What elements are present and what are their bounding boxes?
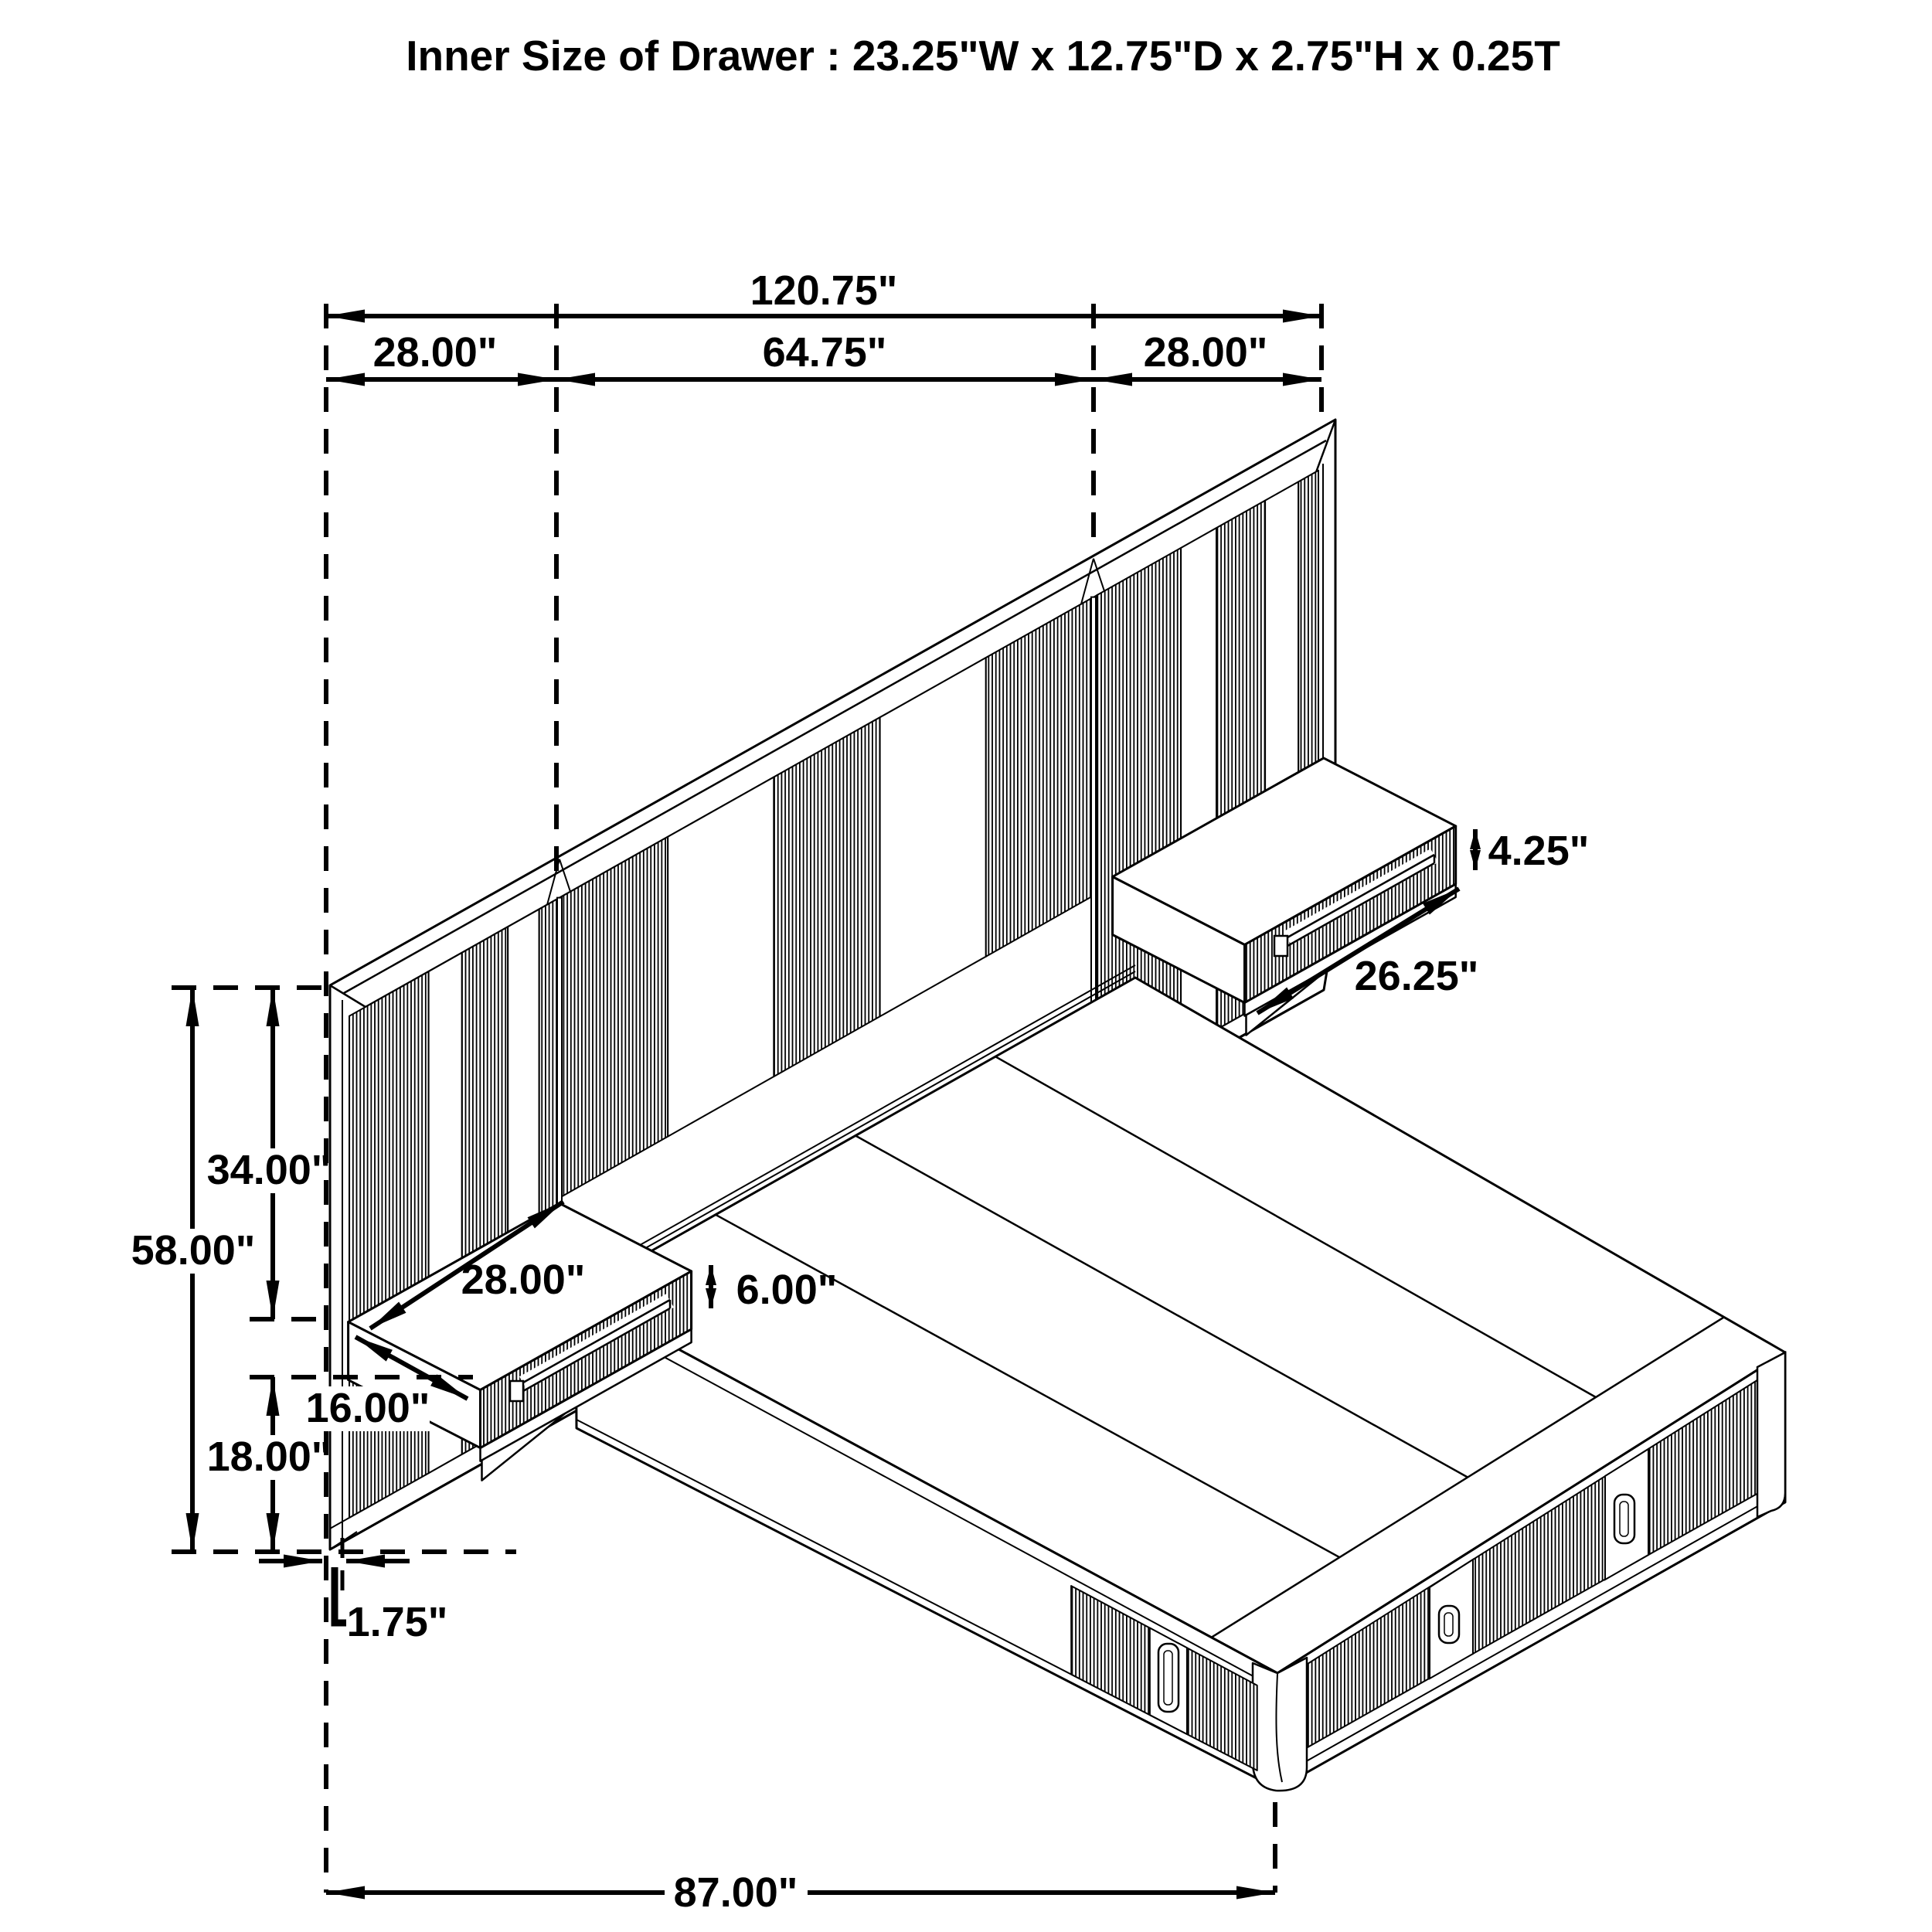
svg-text:Inner Size of Drawer : 23.25"W: Inner Size of Drawer : 23.25"W x 12.75"D… [406,32,1560,80]
svg-text:16.00": 16.00" [306,1385,430,1431]
svg-text:28.00": 28.00" [1144,329,1268,376]
svg-text:18.00": 18.00" [207,1434,332,1480]
svg-text:64.75": 64.75" [763,329,887,376]
svg-text:28.00": 28.00" [373,329,498,376]
svg-text:58.00": 58.00" [131,1227,256,1274]
svg-text:4.25": 4.25" [1488,828,1590,874]
svg-text:1.75": 1.75" [347,1599,448,1645]
svg-text:34.00": 34.00" [207,1147,332,1193]
svg-text:6.00": 6.00" [736,1267,838,1313]
svg-text:87.00": 87.00" [674,1869,798,1916]
svg-text:120.75": 120.75" [750,267,898,314]
svg-text:26.25": 26.25" [1355,953,1479,999]
svg-text:28.00": 28.00" [461,1257,586,1303]
